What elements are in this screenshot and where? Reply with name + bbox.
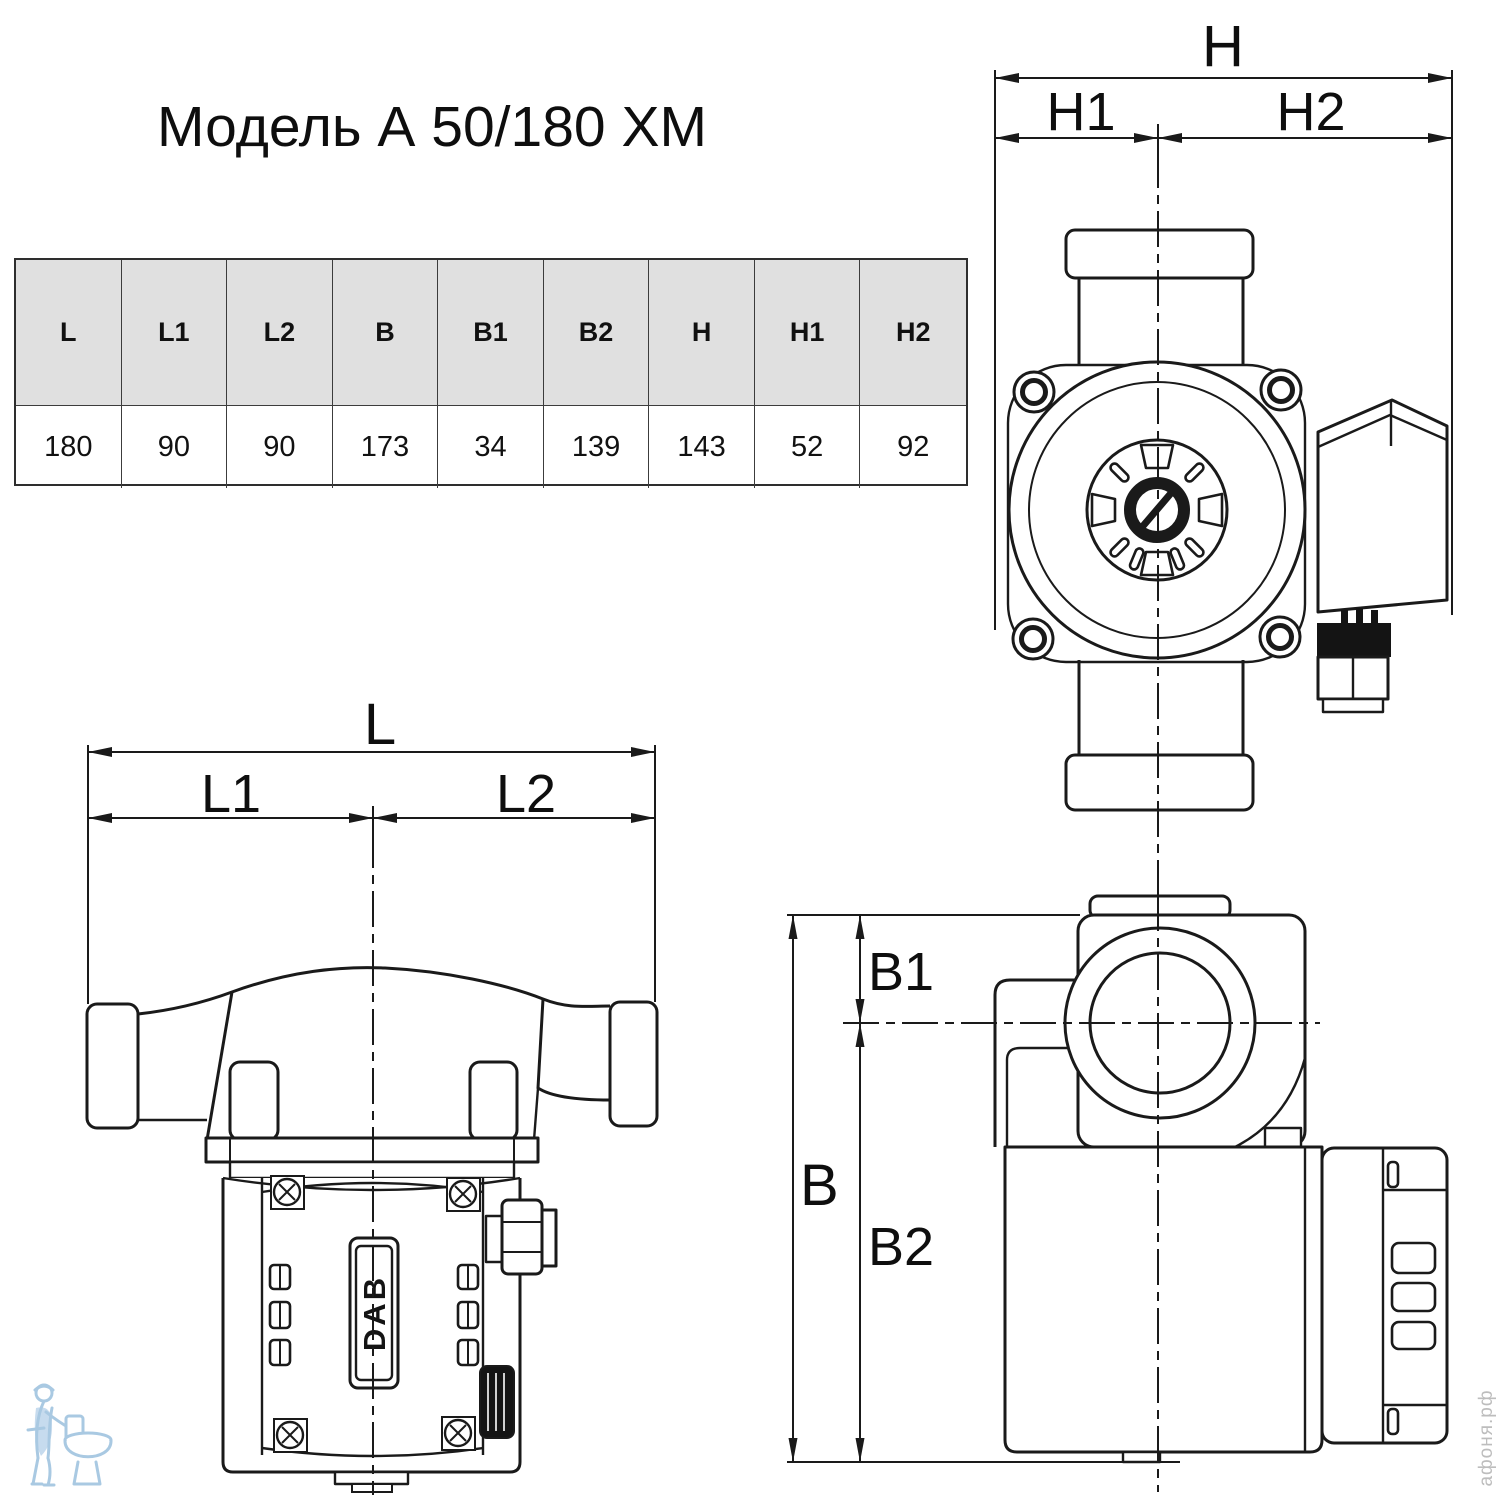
connector-block	[1317, 623, 1391, 657]
table-header-cell: L1	[122, 260, 228, 406]
table-value-cell: 92	[860, 406, 966, 488]
table-header-cell: H1	[755, 260, 861, 406]
vent-slot	[1392, 1283, 1435, 1311]
dim-label-H2: H2	[1276, 82, 1345, 142]
back-dim-B	[789, 915, 798, 1462]
site-watermark: афоня.рф	[1476, 1389, 1498, 1486]
side-view-drawing: DAB L L1 L2	[78, 688, 678, 1500]
bolt-ear	[1013, 619, 1053, 659]
table-header-cell: B2	[544, 260, 650, 406]
pump-front-body	[1008, 230, 1447, 810]
back-dim-B1B2	[856, 915, 865, 1462]
table-header-cell: B1	[438, 260, 544, 406]
table-header-cell: H	[649, 260, 755, 406]
terminal-box	[1322, 1148, 1447, 1443]
bolt-boss	[470, 1062, 517, 1140]
brand-label: DAB	[357, 1275, 392, 1351]
table-value-cell: 90	[122, 406, 228, 488]
plumber-logo-icon	[8, 1378, 123, 1496]
dimension-table: L L1 L2 B B1 B2 H H1 H2 180 90 90 173 34…	[14, 258, 968, 486]
table-header-cell: B	[333, 260, 439, 406]
back-view-drawing: B B1 B2	[778, 888, 1470, 1500]
page-title: Модель А 50/180 ХМ	[157, 98, 707, 158]
top-pipe-coupling	[1066, 230, 1253, 278]
bolt-ear	[1014, 372, 1054, 412]
page-root: { "title": "Модель А 50/180 ХМ", "brand_…	[0, 0, 1500, 1500]
table-value-cell: 90	[227, 406, 333, 488]
dim-label-B2: B2	[868, 1217, 934, 1277]
dim-label-B: B	[800, 1153, 839, 1218]
bottom-pipe-coupling	[1066, 755, 1253, 810]
bolt-boss	[230, 1062, 278, 1140]
vent-slot	[1392, 1322, 1435, 1349]
table-value-cell: 173	[333, 406, 439, 488]
mount-tab	[1265, 1128, 1301, 1147]
dim-label-H: H	[1202, 18, 1244, 79]
table-value-cell: 34	[438, 406, 544, 488]
front-view-drawing: H H1 H2	[985, 18, 1475, 928]
dim-label-L1: L1	[201, 764, 261, 824]
table-value-cell: 143	[649, 406, 755, 488]
selector-knob	[480, 1366, 514, 1438]
motor-body	[1005, 1147, 1322, 1452]
dim-label-L2: L2	[496, 764, 556, 824]
table-header-cell: H2	[860, 260, 966, 406]
dim-label-L: L	[364, 692, 396, 757]
bolt-ear	[1261, 370, 1301, 410]
side-dim-L1L2	[88, 806, 655, 832]
table-value-cell: 180	[16, 406, 122, 488]
dim-label-H1: H1	[1046, 82, 1115, 142]
table-value-cell: 52	[755, 406, 861, 488]
pump-back-body	[995, 896, 1447, 1462]
table-header-cell: L2	[227, 260, 333, 406]
table-value-cell: 139	[544, 406, 650, 488]
left-pipe-coupling	[87, 1004, 138, 1128]
bottom-foot	[335, 1472, 408, 1484]
dim-label-B1: B1	[868, 942, 934, 1002]
terminal-box	[1317, 400, 1447, 712]
side-extension-lines	[88, 745, 655, 1004]
right-pipe-coupling	[610, 1002, 657, 1126]
table-header-cell: L	[16, 260, 122, 406]
vent-slot	[1392, 1243, 1435, 1273]
bolt-ear	[1260, 617, 1300, 657]
bottom-boss	[1123, 1452, 1160, 1462]
